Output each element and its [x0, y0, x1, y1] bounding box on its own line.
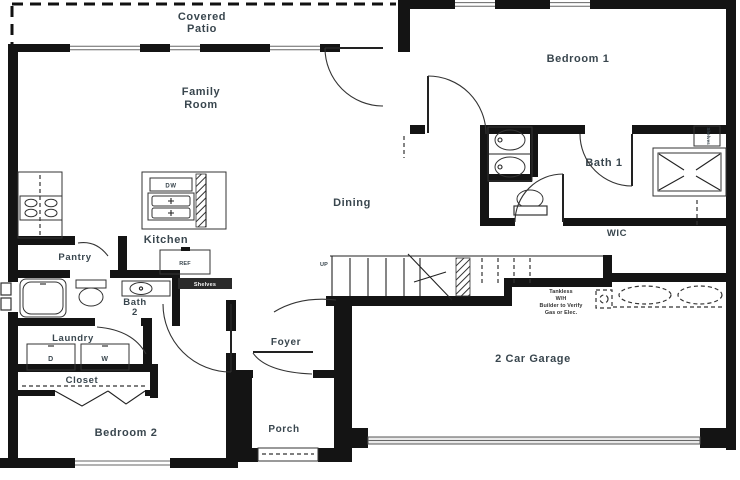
window-family-2 — [170, 44, 200, 52]
toilet-tank — [76, 280, 106, 288]
window-family-1 — [70, 44, 140, 52]
toilet-bowl — [79, 288, 103, 306]
label-bath2-2: 2 — [132, 307, 138, 318]
porch: Porch — [258, 424, 318, 461]
label-bath1: Bath 1 — [585, 157, 622, 169]
interior-walls — [18, 125, 736, 462]
window-bedroom2 — [75, 458, 170, 468]
burner — [45, 209, 57, 217]
family-room: Family Room — [182, 48, 383, 111]
note-line-3: Builder to Verify — [539, 303, 582, 309]
wic: WIC — [515, 174, 724, 307]
sink-drain — [139, 287, 142, 290]
burner — [25, 199, 37, 207]
pantry: Pantry — [58, 243, 108, 263]
floor-plan-drawing: Covered Patio — [0, 0, 740, 480]
label-garage: 2 Car Garage — [495, 353, 571, 365]
label-bedroom1: Bedroom 1 — [547, 53, 610, 65]
patio-door-arc — [325, 48, 383, 106]
label-laundry: Laundry — [52, 333, 94, 344]
garage: 2 Car Garage Tankless W/H Builder to Ver… — [368, 289, 700, 444]
label-porch: Porch — [268, 424, 299, 435]
label-family-room-2: Room — [184, 99, 218, 111]
label-dining: Dining — [333, 197, 371, 209]
porch-step — [258, 448, 318, 461]
vanity-sink — [130, 283, 152, 295]
window-bedroom1-1 — [455, 0, 495, 9]
sink-faucet — [498, 165, 502, 169]
floor-plan: Covered Patio — [0, 0, 740, 480]
bedroom1-door-arc — [428, 76, 486, 134]
water-heater-circle — [600, 295, 608, 303]
label-wic: WIC — [607, 228, 627, 239]
stair-break-line — [408, 254, 452, 300]
shower — [653, 148, 726, 196]
label-stairs-up: UP — [320, 262, 328, 268]
front-door-arc — [253, 353, 312, 374]
label-kitchen: Kitchen — [144, 234, 189, 246]
sink-faucet — [498, 138, 502, 142]
dining: Dining — [333, 197, 371, 209]
burner — [25, 209, 37, 217]
bifold-doors — [55, 391, 145, 406]
note-line-4: Gas or Elec. — [545, 310, 578, 316]
label-dryer: D — [48, 356, 54, 363]
stair-hatch-post — [456, 258, 470, 296]
label-foyer: Foyer — [271, 337, 301, 348]
bathtub-inner — [23, 282, 63, 314]
sink-faucets — [168, 198, 174, 216]
bath1: Bath 1 Shelves — [488, 126, 726, 215]
bathtub — [20, 279, 66, 317]
label-covered-patio-2: Patio — [187, 23, 217, 35]
label-bedroom2: Bedroom 2 — [95, 427, 158, 439]
bath2-door-arc — [97, 327, 146, 354]
window-family-3 — [270, 44, 320, 52]
label-pantry: Pantry — [58, 252, 91, 263]
note-line-1: Tankless — [549, 289, 572, 295]
toilet-tank — [514, 206, 547, 215]
label-hall-shelves: Shelves — [194, 282, 216, 288]
island-bar-hatch — [196, 174, 206, 227]
label-family-room-1: Family — [182, 86, 221, 98]
burner — [45, 199, 57, 207]
note-line-2: W/H — [556, 296, 567, 302]
windows — [1, 0, 590, 468]
label-refrigerator: REF — [179, 261, 191, 267]
window-bedroom1-2 — [550, 0, 590, 9]
foyer: Foyer — [253, 299, 336, 374]
range — [20, 196, 62, 220]
hanging-rod-oval — [678, 286, 722, 304]
covered-patio: Covered Patio — [12, 4, 396, 44]
hanging-rod-oval — [619, 286, 671, 304]
refrigerator-mark — [181, 247, 190, 251]
label-covered-patio-1: Covered — [178, 11, 226, 23]
label-wic-shelves: Shelves — [706, 127, 711, 145]
window-bath2 — [1, 282, 18, 312]
bedroom1: Bedroom 1 — [428, 53, 609, 134]
water-heater-note: Tankless W/H Builder to Verify Gas or El… — [539, 289, 612, 316]
label-dishwasher: DW — [165, 184, 176, 190]
label-washer: W — [101, 356, 108, 363]
shower-corner-marks — [659, 154, 720, 190]
water-heater-symbol — [596, 290, 612, 308]
label-closet: Closet — [66, 375, 99, 386]
